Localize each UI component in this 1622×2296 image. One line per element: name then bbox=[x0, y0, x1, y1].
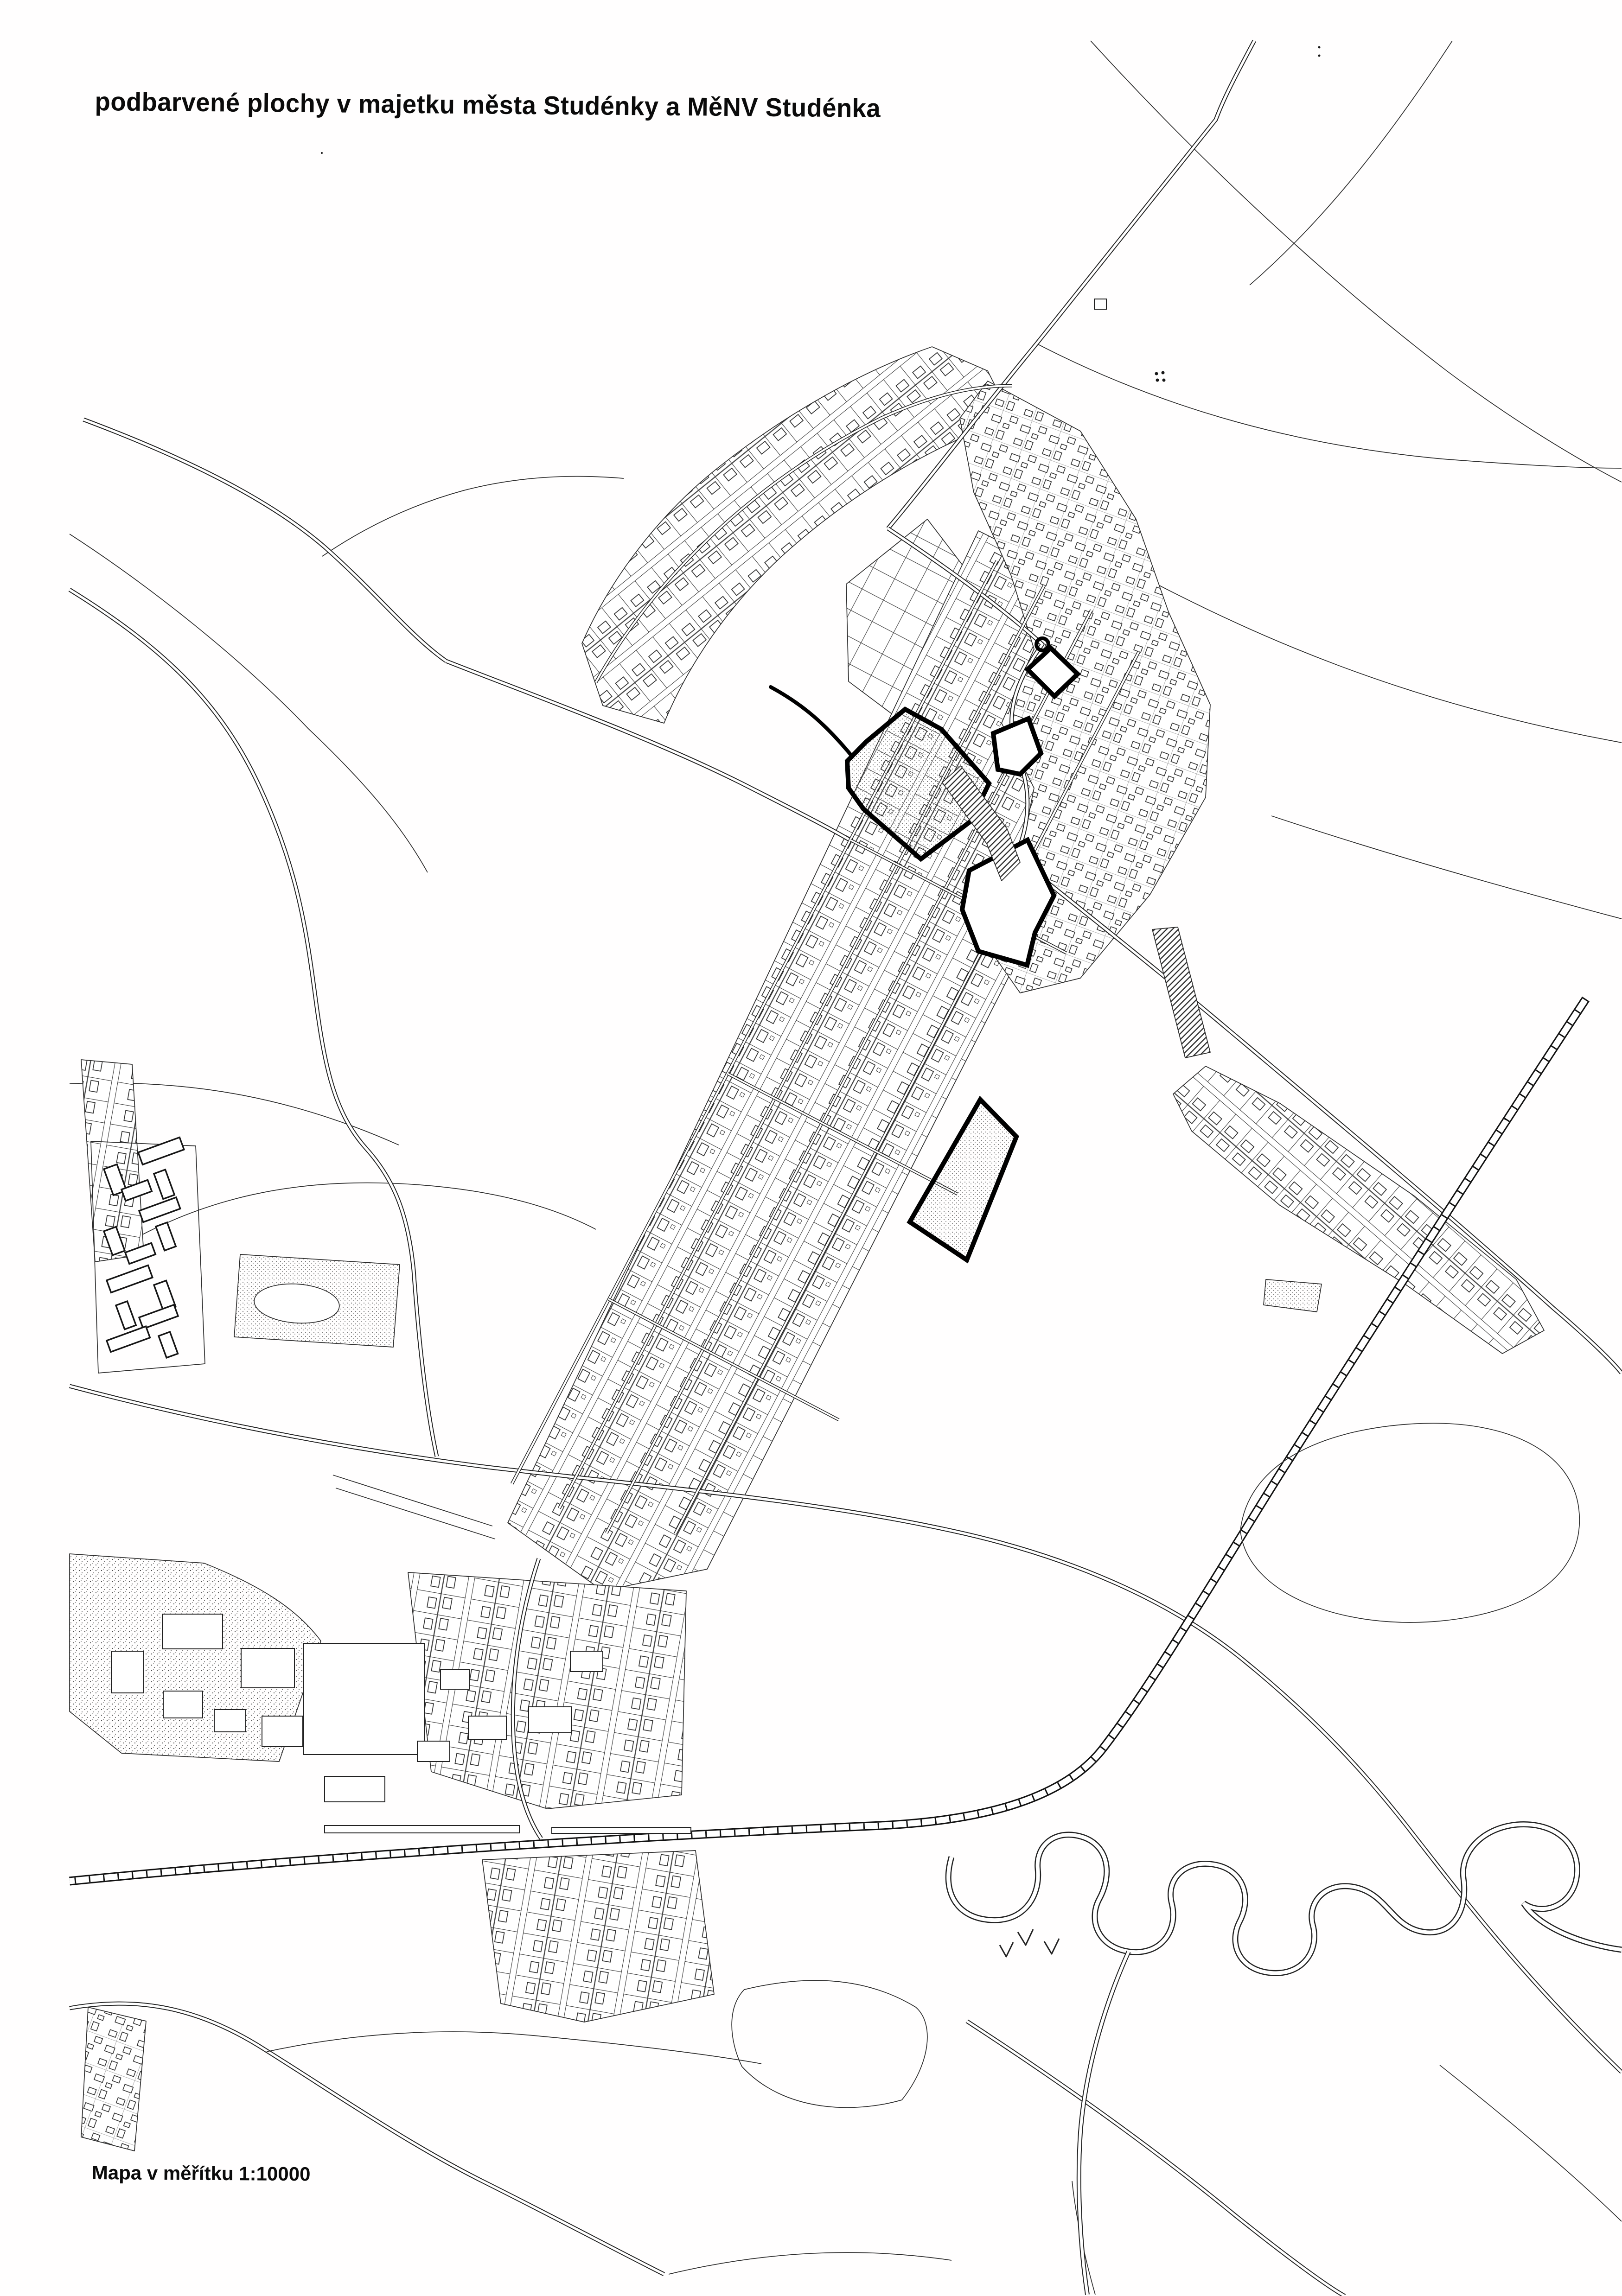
parcel-band-east bbox=[1173, 1066, 1544, 1354]
hatched-strip bbox=[1152, 927, 1210, 1058]
estate-block bbox=[107, 1266, 153, 1293]
scan-speck bbox=[1318, 46, 1321, 49]
factory-building bbox=[163, 1691, 203, 1718]
field-line bbox=[669, 2252, 951, 2274]
field-line bbox=[1271, 816, 1622, 919]
scale-note: Mapa v měřítku 1:10000 bbox=[92, 2162, 311, 2185]
road-southeast bbox=[1049, 884, 1622, 1373]
estate-block bbox=[139, 1305, 178, 1329]
scanned-map-page: podbarvené plochy v majetku města Studén… bbox=[0, 0, 1622, 2296]
estate-block bbox=[154, 1170, 174, 1199]
road-south-west bbox=[70, 2003, 664, 2274]
scan-speck bbox=[1318, 55, 1321, 57]
farmstead bbox=[1094, 299, 1106, 309]
factory-building bbox=[468, 1716, 506, 1739]
wetland-mark bbox=[1044, 1939, 1059, 1954]
field-line bbox=[1091, 41, 1622, 482]
tree-dot bbox=[1162, 371, 1165, 375]
road-northwest bbox=[83, 420, 446, 661]
road-pond bbox=[267, 2032, 761, 2064]
railway-siding bbox=[336, 1488, 495, 1539]
wetland-mark bbox=[1018, 1929, 1033, 1945]
factory-building bbox=[417, 1741, 450, 1762]
station-platform bbox=[552, 1827, 691, 1833]
factory-building bbox=[162, 1614, 223, 1649]
factory-building bbox=[304, 1643, 424, 1755]
scan-speck bbox=[321, 152, 323, 154]
road-southeast bbox=[1049, 884, 1622, 1373]
stipple-patch-east bbox=[1264, 1279, 1322, 1312]
road-river-south bbox=[967, 2021, 1345, 2296]
parcel-cluster-station bbox=[482, 1851, 714, 2022]
factory-building bbox=[325, 1776, 385, 1802]
estate-block bbox=[159, 1332, 178, 1358]
map-canvas bbox=[0, 0, 1622, 2296]
estate-block bbox=[107, 1326, 150, 1352]
pond-outline bbox=[732, 1980, 927, 2107]
station-platform bbox=[325, 1825, 519, 1833]
factory-building bbox=[241, 1648, 294, 1688]
estate-block bbox=[116, 1301, 136, 1329]
field-line bbox=[1250, 41, 1452, 285]
factory-building bbox=[262, 1716, 303, 1747]
estate-block bbox=[156, 1222, 176, 1251]
railway-siding bbox=[333, 1475, 492, 1526]
estate-block bbox=[138, 1138, 184, 1165]
field-line bbox=[1440, 2065, 1622, 2221]
settlement-sw bbox=[81, 2007, 146, 2151]
factory-building bbox=[529, 1707, 571, 1733]
factory-building bbox=[214, 1710, 246, 1732]
field-line bbox=[1037, 344, 1622, 468]
field-line bbox=[70, 534, 428, 872]
factory-building bbox=[441, 1670, 469, 1689]
tree-dot bbox=[1162, 379, 1166, 382]
tree-dot bbox=[1156, 379, 1159, 382]
bold-street-edge bbox=[771, 687, 852, 757]
road-south-west bbox=[70, 2003, 664, 2274]
road-northwest bbox=[83, 420, 446, 661]
factory-building bbox=[111, 1651, 144, 1693]
river-branch bbox=[1079, 1952, 1129, 2295]
parcel-cluster-south bbox=[408, 1572, 686, 1809]
map-features bbox=[70, 41, 1622, 2296]
factory-building bbox=[570, 1651, 603, 1672]
estate-block bbox=[139, 1197, 180, 1222]
wetland-mark bbox=[1000, 1942, 1013, 1957]
river-branch bbox=[1079, 1952, 1129, 2295]
tree-dot bbox=[1155, 372, 1158, 375]
field-line bbox=[322, 477, 624, 556]
field-line bbox=[108, 1183, 596, 1254]
